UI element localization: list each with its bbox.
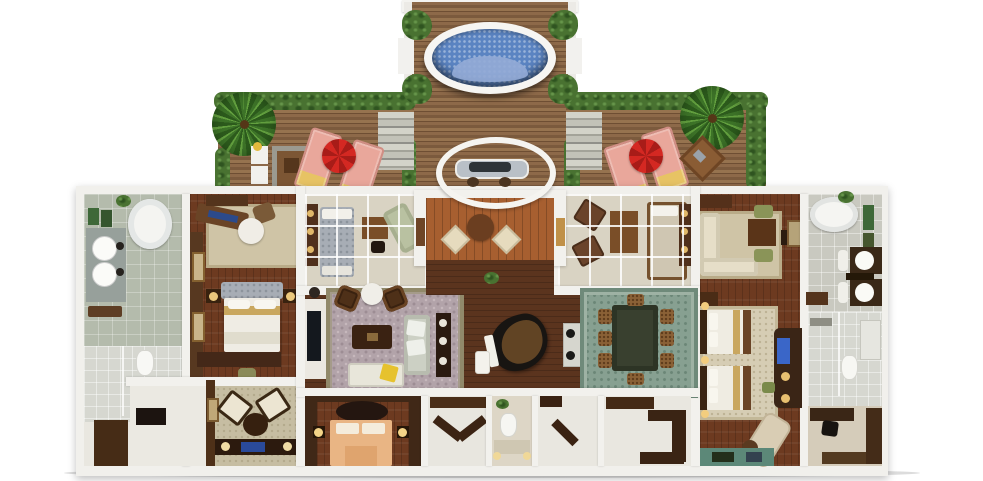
twin-bed1-footboard (743, 310, 751, 354)
pool-plant-tl (402, 10, 432, 40)
bedroom2-pillow-2 (362, 423, 385, 434)
office-lamp-1 (221, 442, 230, 451)
dressing-cabinet-right (866, 408, 882, 464)
bath-plant-right (838, 191, 854, 203)
study2-cabinet (700, 195, 732, 208)
dining-chair-r1 (660, 309, 674, 324)
bathtub-right (810, 197, 858, 232)
vanity-bench (846, 273, 874, 280)
toilet-right (841, 355, 858, 380)
faucet-left-2 (116, 268, 124, 276)
bedroom2-blanket (345, 446, 377, 466)
tv-cabinet-lamp-2 (781, 394, 790, 403)
wardrobe-lamp-l3 (307, 246, 314, 253)
office-round-table (243, 413, 268, 436)
twin-bed2-footboard (743, 366, 751, 410)
dining-chair-r2 (660, 331, 674, 346)
twin-bed2-pillow-1 (709, 369, 718, 386)
powder-toilet (500, 413, 517, 437)
bath-plant-left (116, 195, 131, 207)
console-decor-2 (439, 337, 447, 345)
piano-bench (475, 351, 490, 374)
twin-bed1-gold-runner (733, 310, 740, 354)
wardrobe-lamp-r1 (681, 210, 688, 217)
faucet-left-1 (116, 242, 124, 250)
bath-wall-art-1 (88, 208, 99, 225)
buffet-stool-2 (499, 177, 511, 187)
twin-bed1-pillow-2 (709, 332, 718, 347)
umbrella-left (322, 139, 356, 173)
bath-shelf-right (810, 318, 832, 326)
vanity-stool-1 (838, 250, 848, 271)
terrace-steps-left (378, 112, 414, 170)
closet1-top-cabinet (430, 397, 486, 408)
bedroom2-pillow-1 (336, 423, 359, 434)
shower-tray (860, 320, 881, 360)
vestibule-dark-console (416, 218, 425, 246)
shower-glass-left (122, 346, 124, 416)
dining-chair-bottom (627, 373, 644, 385)
office-dark-wall (206, 380, 215, 466)
sink-left-2 (92, 262, 117, 287)
bed-foot-console (197, 352, 281, 367)
wall-sconce-1 (701, 302, 709, 310)
palm-trunk-right (708, 114, 717, 123)
dining-table (612, 305, 658, 371)
living-tv (307, 311, 321, 361)
corridor-cabinet-top (540, 396, 562, 407)
master-bed-fold (224, 332, 280, 344)
bedside-lamp-right (286, 292, 295, 301)
master-pillow-1 (228, 300, 250, 309)
umbrella-right (629, 139, 663, 173)
toilet-left (136, 350, 154, 376)
study-left-pillow-2 (322, 266, 352, 275)
hall-console-table (136, 408, 166, 425)
bedroom2-headboard-oval (336, 401, 388, 422)
mid-console-item-1 (566, 329, 575, 338)
wardrobe-lamp-l1 (307, 210, 314, 217)
powder-candle-1 (493, 452, 501, 460)
study-right-pillow (651, 206, 678, 216)
dressing-chair (821, 420, 839, 437)
closet-cabinet-1 (94, 420, 128, 466)
terrace-steps-right (566, 112, 602, 170)
bath-green-art-2 (863, 233, 874, 247)
vestibule-gold-console (556, 218, 565, 246)
planter-box-2 (251, 166, 268, 184)
dining-chair-l1 (598, 309, 612, 324)
pool-float (253, 142, 262, 151)
dining-chair-l2 (598, 331, 612, 346)
bathtub-left (128, 199, 172, 249)
closet2-counter-bottom (640, 452, 684, 464)
pool-planter-left (398, 38, 414, 74)
study-right-desk (610, 211, 638, 253)
wall-leftwing-center (296, 186, 305, 466)
twin-green-stool (762, 382, 775, 393)
pool-plant-bl (402, 74, 432, 104)
mid-console-item-2 (566, 351, 575, 360)
powder-candle-2 (523, 452, 531, 460)
master-pillow-2 (254, 300, 276, 309)
twin-bed2-gold-runner (733, 366, 740, 410)
buffet-stool-1 (467, 177, 479, 187)
wardrobe-lamp-r3 (681, 246, 688, 253)
dining-chair-top (627, 294, 644, 306)
study2-sofa-horizontal (700, 258, 758, 276)
study-left-pillow-1 (322, 209, 352, 219)
bedroom2-lamp-r (398, 428, 407, 437)
wall-sconce-3 (701, 410, 709, 418)
dining-chair-l3 (598, 353, 612, 368)
study2-green-chair-1 (754, 205, 773, 218)
art-frame-1 (192, 252, 205, 282)
hall-floor (130, 386, 206, 466)
round-ottoman (238, 218, 264, 244)
twin-bed1-headboard (700, 310, 707, 354)
bath-wall-art-2 (101, 210, 112, 227)
art-frame-2 (192, 312, 205, 342)
wardrobe-lamp-r2 (681, 228, 688, 235)
entry-hall-plant (484, 272, 499, 284)
console-decor-1 (439, 319, 447, 327)
twin-tv-screen (777, 338, 790, 364)
floorplan-stage (0, 0, 983, 481)
shower-glass-right (838, 312, 840, 396)
coffee-table-decor (367, 333, 378, 341)
wall-bottom-1 (421, 396, 428, 466)
window-seat-cushion-2 (746, 452, 762, 462)
sofa-cushion-1 (406, 320, 426, 337)
twin-bed2-headboard (700, 366, 707, 410)
hedge-right-edge (746, 102, 766, 190)
vanity-stool-2 (838, 282, 848, 303)
office-lamp-2 (283, 442, 292, 451)
console-decor-3 (439, 357, 447, 365)
study2-desk (748, 219, 776, 246)
towel-bench-left (88, 306, 122, 317)
closet2-top-cabinet (606, 397, 654, 409)
buffet-table-top (469, 162, 511, 172)
twin-bed2-pillow-2 (709, 388, 718, 403)
entry-round-table (467, 214, 494, 241)
sink-left-1 (92, 236, 117, 261)
master-headboard (221, 282, 283, 299)
sink-right-1 (855, 251, 874, 270)
sofa-cushion-2 (406, 339, 426, 356)
master-top-cabinet (206, 195, 248, 206)
tv-cabinet-lamp-1 (781, 372, 790, 381)
bath-green-art-1 (863, 205, 874, 230)
palm-trunk-left (240, 120, 249, 129)
dressing-desk (810, 408, 854, 421)
corridor-cabinet (806, 292, 828, 305)
dressing-cabinet-bottom (822, 452, 866, 464)
office-laptop (241, 442, 265, 452)
dining-chair-r3 (660, 353, 674, 368)
pool-planter-right (566, 38, 582, 74)
wardrobe-lamp-l2 (307, 228, 314, 235)
bedroom2-lamp-l (314, 428, 323, 437)
study-left-desk (362, 217, 388, 239)
study-left-chair (371, 241, 385, 253)
wall-sconce-2 (701, 356, 709, 364)
powder-plant (496, 399, 509, 409)
window-seat-cushion-1 (712, 452, 734, 462)
bedside-lamp-left (209, 292, 218, 301)
living-speaker (309, 287, 320, 298)
twin-bed1-pillow-1 (709, 313, 718, 330)
round-side-table (361, 283, 383, 305)
study2-green-chair-2 (754, 249, 773, 262)
sink-right-2 (855, 283, 874, 302)
pool-plant-tr (548, 10, 578, 40)
